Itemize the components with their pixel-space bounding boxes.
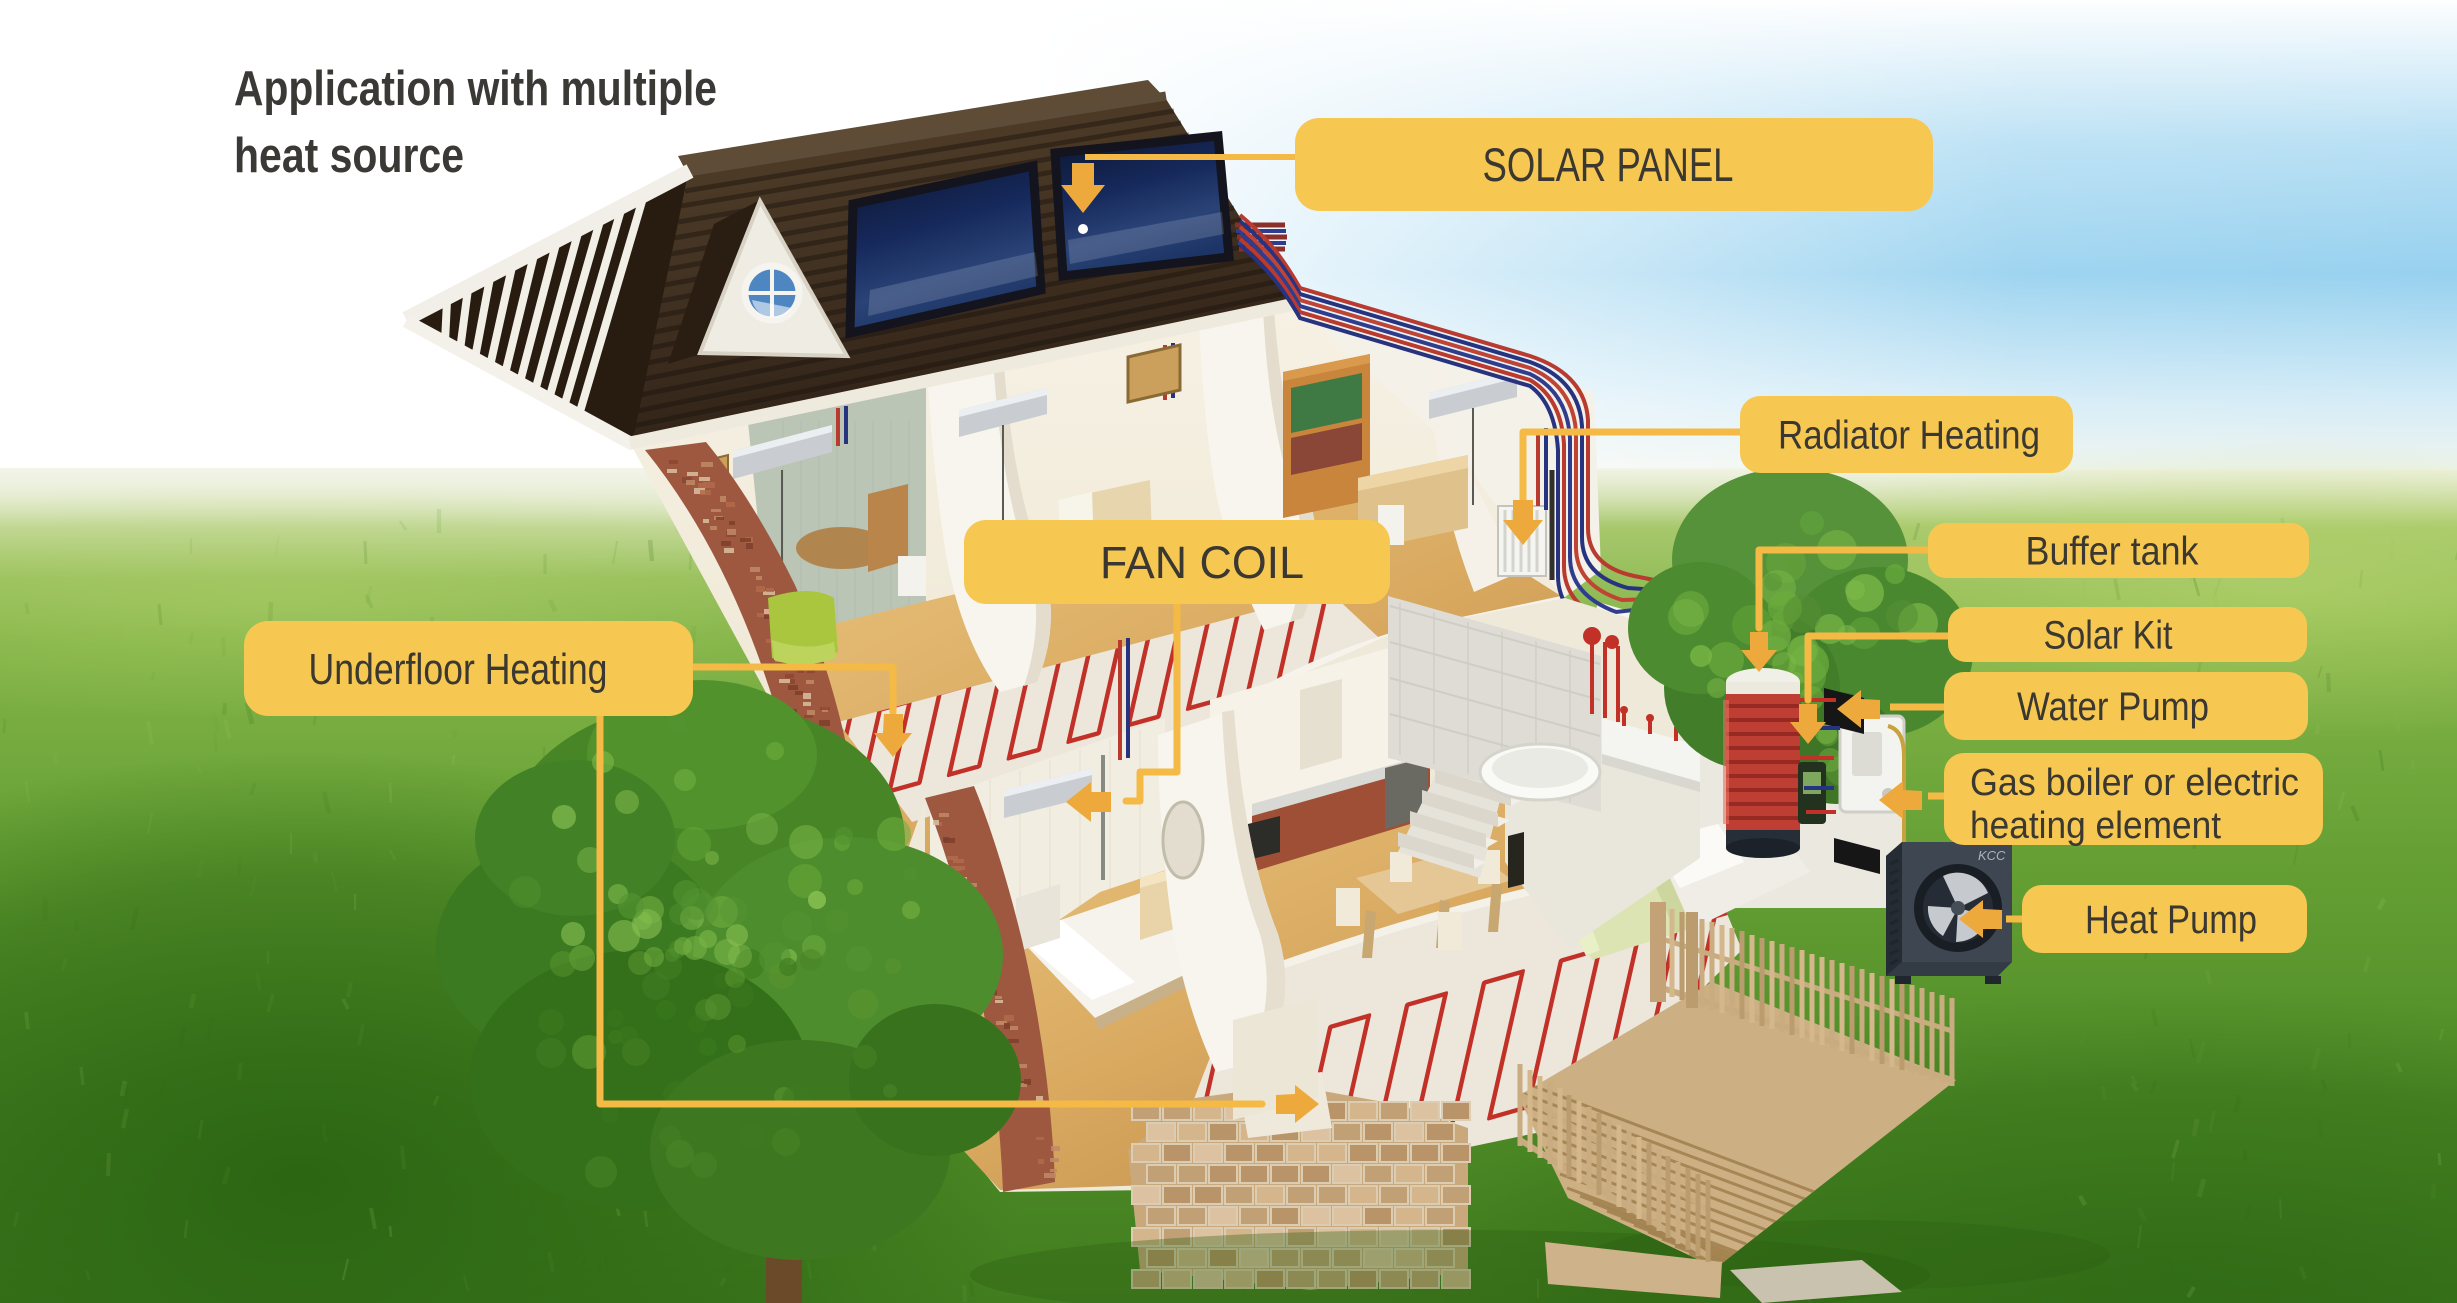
svg-text:Heat Pump: Heat Pump [2085,898,2257,942]
svg-text:Gas boiler or electric: Gas boiler or electric [1970,762,2299,804]
svg-text:heating element: heating element [1970,805,2221,847]
svg-text:Underfloor Heating: Underfloor Heating [309,645,608,694]
svg-text:heat source: heat source [234,129,464,183]
svg-text:FAN COIL: FAN COIL [1100,537,1304,588]
svg-text:Application with multiple: Application with multiple [234,62,717,116]
svg-text:Water Pump: Water Pump [2017,685,2209,729]
svg-text:KCC: KCC [1978,848,2006,863]
svg-text:Solar Kit: Solar Kit [2044,614,2173,658]
svg-text:SOLAR PANEL: SOLAR PANEL [1483,138,1734,191]
svg-text:Radiator Heating: Radiator Heating [1778,414,2040,458]
svg-text:Buffer tank: Buffer tank [2026,530,2200,574]
